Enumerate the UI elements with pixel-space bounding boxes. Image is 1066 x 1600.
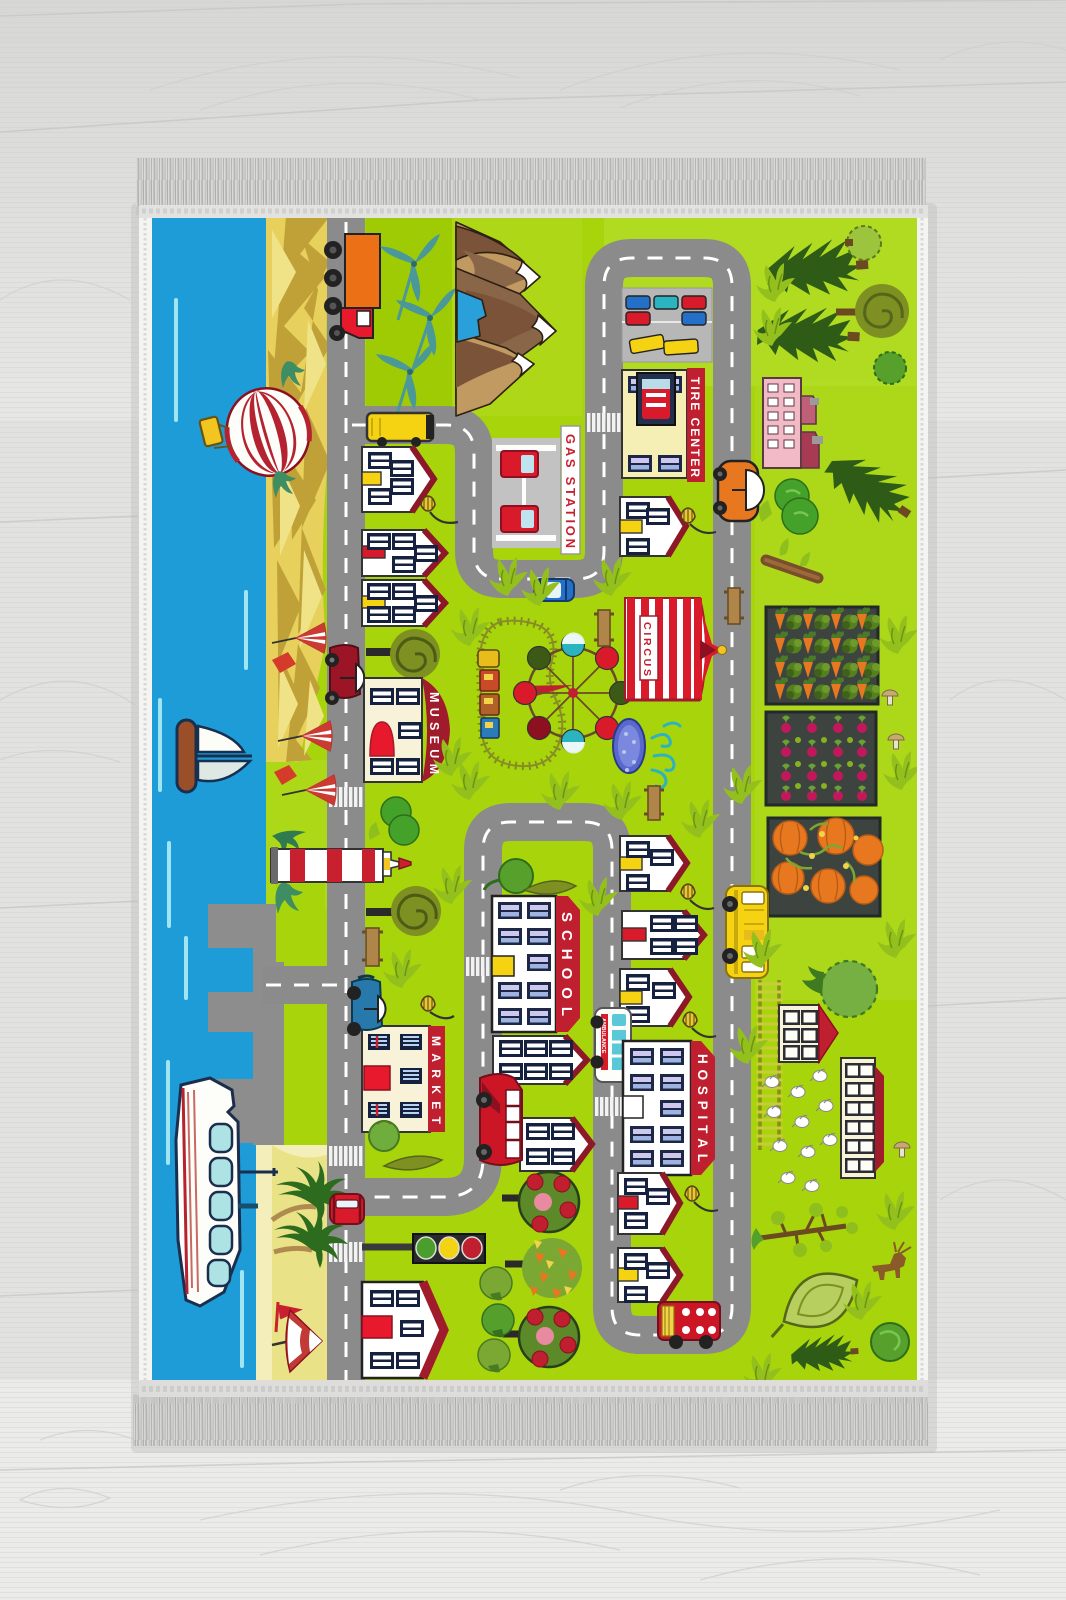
svg-text:GAS STATION: GAS STATION bbox=[563, 434, 578, 548]
svg-text:HOSPITAL: HOSPITAL bbox=[695, 1054, 710, 1162]
